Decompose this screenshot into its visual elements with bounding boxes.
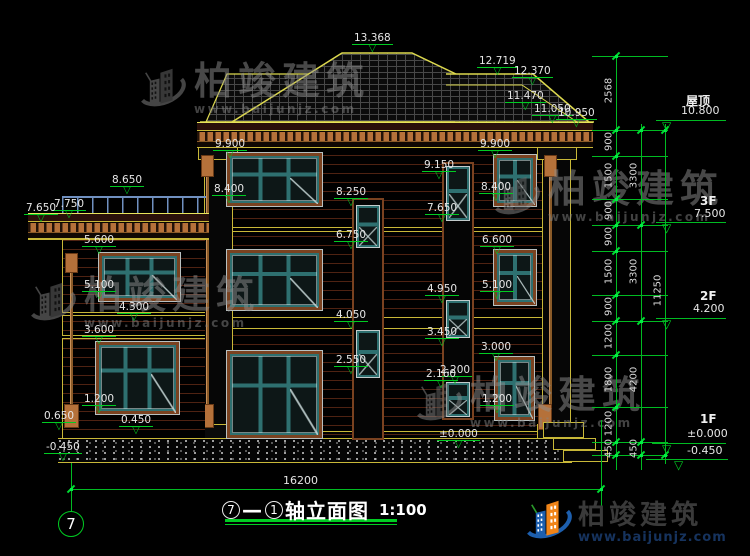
entrance-step [553,438,596,450]
elevation-marker: 3.450▽ [425,327,459,348]
building-icon [136,62,188,116]
elevation-marker: 9.900▽ [213,139,247,160]
dim-node [615,354,618,357]
elevation-marker: 5.100▽ [82,280,116,301]
dim-segment-value: 3300 [629,156,640,196]
dim-segment-value: 2568 [604,71,615,111]
grid-bubble-7: 7 [58,511,84,537]
elevation-marker: 0.650▽ [42,411,76,432]
building-icon [26,276,78,330]
floor-label: 1F [700,412,717,426]
level-triangle-icon: ▽ [674,459,683,471]
brand-logo: 柏竣建筑 www.baijunjz.com [522,494,727,552]
dim-node [615,250,618,253]
dim-node [640,454,643,457]
dim-node [615,129,618,132]
watermark-url-text: www.baijunjz.com [470,416,646,430]
floor-elevation-value: 10.800 [681,104,720,117]
title-text: 轴立面图 [285,495,369,524]
grid-bubble-label: 7 [66,515,76,533]
level-triangle-icon: ▽ [492,354,500,363]
title-scale: 1:100 [379,501,427,519]
building-icon [522,494,574,548]
elevation-marker: 3.000▽ [479,342,513,363]
dim-segment-value: 4200 [629,360,640,400]
dim-segment-value: 1500 [604,156,615,196]
level-triangle-icon: ▽ [59,454,67,463]
level-triangle-icon: ▽ [435,172,443,181]
drawing-title: 7 — 1 轴立面图 1:100 [222,495,427,524]
level-triangle-icon: ▽ [347,367,355,376]
elevation-marker: 5.100▽ [480,280,514,301]
level-triangle-icon: ▽ [95,406,103,415]
elevation-marker: 8.400▽ [212,184,246,205]
elevation-marker: 0.450▽ [119,415,153,436]
level-triangle-icon: ▽ [573,120,581,129]
brand-logo-text: 柏竣建筑 [578,501,727,531]
elevation-marker: 9.150▽ [422,160,456,181]
level-triangle-icon: ▽ [369,45,377,54]
watermark-url-text: www.baijunjz.com [194,102,370,116]
level-triangle-icon: ▽ [225,196,233,205]
dim-node [640,129,643,132]
floor-elevation-value: 7.500 [694,207,726,220]
level-triangle-icon: ▽ [493,292,501,301]
level-triangle-icon: ▽ [95,247,103,256]
elevation-marker: 7.650▽ [425,203,459,224]
level-triangle-icon: ▽ [492,194,500,203]
elevation-drawing-canvas: 柏竣建筑www.baijunjz.com 柏竣建筑www.baijunjz.co… [0,0,750,556]
floor-level-line [646,459,728,460]
dim-connector-line [592,56,668,57]
dim-segment-value: 1800 [604,360,615,400]
level-triangle-icon: ▽ [662,318,671,330]
level-triangle-icon: ▽ [347,199,355,208]
dim-segment-value: 450 [629,429,640,469]
dim-segment-value: 1200 [604,317,615,357]
dim-segment-value: 900 [604,217,615,257]
dim-node [615,441,618,444]
overall-dimension-value: 16200 [283,474,318,487]
title-dash: — [242,498,263,522]
floor-elevation-value: ±0.000 [687,427,728,440]
elevation-marker: 8.250▽ [334,187,368,208]
main-eave-cornice [197,122,593,148]
elevation-marker: 6.600▽ [480,235,514,256]
dim-segment-value: 1500 [604,252,615,292]
downspout-bracket [65,253,78,273]
dim-node [615,55,618,58]
level-triangle-icon: ▽ [437,381,445,390]
dim-segment-value: 450 [604,429,615,469]
dim-node [70,488,73,491]
floor-elevation-value: -0.450 [687,444,722,457]
level-triangle-icon: ▽ [662,222,671,234]
dim-node [640,320,643,323]
dimension-line [641,124,642,470]
dim-node [600,488,603,491]
elevation-marker: 5.600▽ [82,235,116,256]
level-triangle-icon: ▽ [347,322,355,331]
overall-dimension-line [71,489,601,490]
pilaster-capital-right [537,147,577,160]
floor-elevation-value: 4.200 [693,302,725,315]
level-triangle-icon: ▽ [438,296,446,305]
elevation-marker: 6.750▽ [334,230,368,251]
elevation-marker: 4.950▽ [425,284,459,305]
dim-node [615,406,618,409]
elevation-marker: 4.300▽ [117,302,151,323]
brand-logo-icon [522,494,574,552]
level-triangle-icon: ▽ [529,78,537,87]
level-triangle-icon: ▽ [37,215,45,224]
elevation-marker: 2.550▽ [334,355,368,376]
elevation-marker: 12.370▽ [512,66,553,87]
elevation-marker: ±0.000▽ [437,429,480,450]
level-triangle-icon: ▽ [438,339,446,348]
elevation-marker: 9.900▽ [478,139,512,160]
level-triangle-icon: ▽ [491,151,499,160]
level-triangle-icon: ▽ [455,441,463,450]
dim-node [615,454,618,457]
elevation-marker: 4.050▽ [334,310,368,331]
floor-label: 3F [700,194,717,208]
dimension-line [665,124,666,464]
elevation-marker: 10.950▽ [556,108,597,129]
level-triangle-icon: ▽ [226,151,234,160]
level-triangle-icon: ▽ [493,406,501,415]
watermark-brand-text: 柏竣建筑 [194,62,370,100]
elevation-marker: 7.650▽ [24,203,58,224]
axis-end-bubble: 1 [265,501,283,519]
level-triangle-icon: ▽ [65,211,73,220]
floor-label: 2F [700,289,717,303]
level-triangle-icon: ▽ [522,103,530,112]
level-triangle-icon: ▽ [55,423,63,432]
dim-node [615,155,618,158]
dim-node [615,294,618,297]
elevation-marker: 13.368▽ [352,33,393,54]
elevation-marker: 3.600▽ [82,325,116,346]
title-underline-thin [225,524,397,525]
belt-course-3f [204,227,571,232]
brand-logo-url: www.baijunjz.com [578,530,727,545]
elevation-marker: 8.400▽ [479,182,513,203]
dim-node [615,320,618,323]
level-triangle-icon: ▽ [493,247,501,256]
level-triangle-icon: ▽ [662,120,671,132]
plinth-band [58,438,572,463]
level-triangle-icon: ▽ [347,242,355,251]
level-triangle-icon: ▽ [130,314,138,323]
dim-node [615,224,618,227]
level-triangle-icon: ▽ [95,292,103,301]
level-triangle-icon: ▽ [132,427,140,436]
level-triangle-icon: ▽ [662,443,671,455]
dim-node [640,441,643,444]
level-triangle-icon: ▽ [123,187,131,196]
window-1f-left [227,351,322,438]
dim-node [640,224,643,227]
dim-segment-value: 3300 [629,252,640,292]
dim-segment-value: 11250 [653,271,664,311]
elevation-marker: 2.160▽ [424,369,458,390]
elevation-marker: -0.450▽ [44,442,82,463]
level-triangle-icon: ▽ [494,68,502,77]
dim-node [615,198,618,201]
level-triangle-icon: ▽ [438,215,446,224]
brand-watermark: 柏竣建筑www.baijunjz.com [136,62,370,116]
elevation-marker: 1.200▽ [82,394,116,415]
elevation-marker: 1.200▽ [480,394,514,415]
elevation-marker: 8.650▽ [110,175,144,196]
level-triangle-icon: ▽ [95,337,103,346]
axis-start-bubble: 7 [222,501,240,519]
